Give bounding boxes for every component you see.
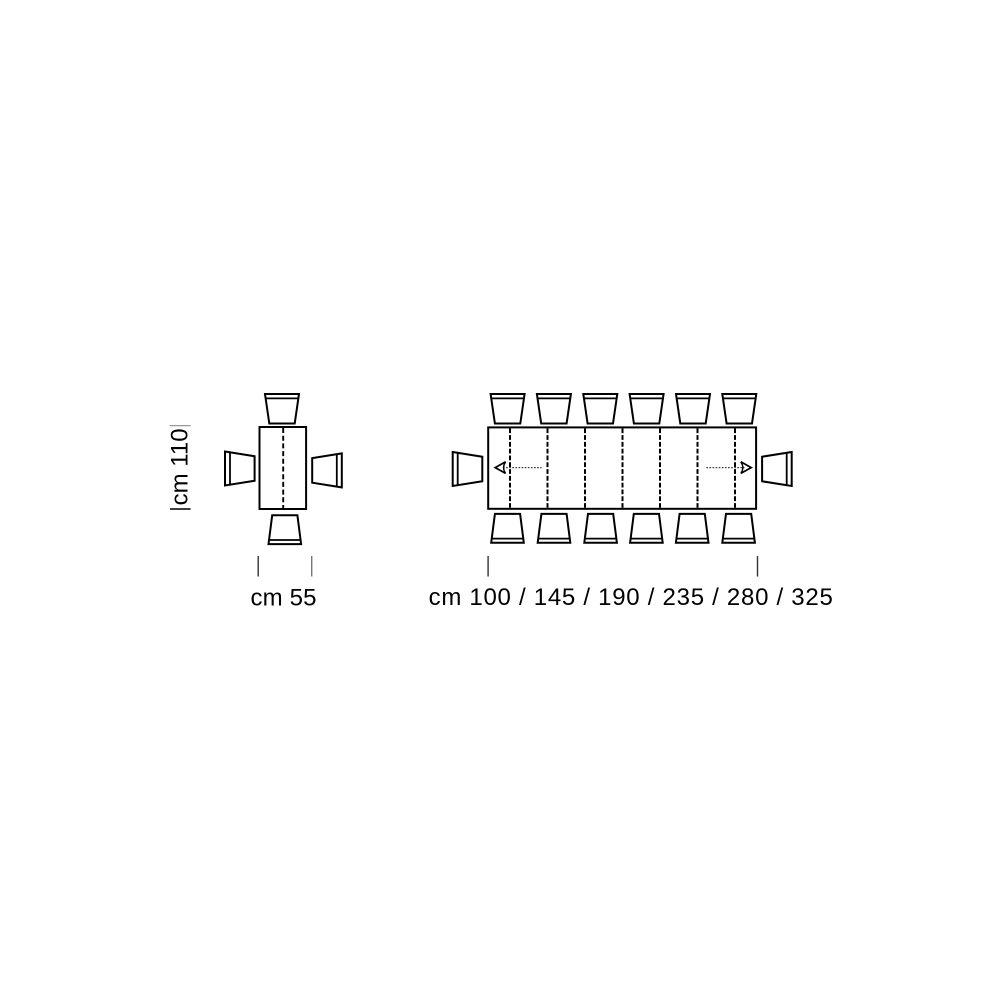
svg-text:cm 55: cm 55	[251, 585, 317, 612]
svg-text:cm 110: cm 110	[166, 428, 193, 505]
svg-text:cm 100 / 145 / 190 / 235 / 280: cm 100 / 145 / 190 / 235 / 280 / 325	[429, 584, 833, 611]
